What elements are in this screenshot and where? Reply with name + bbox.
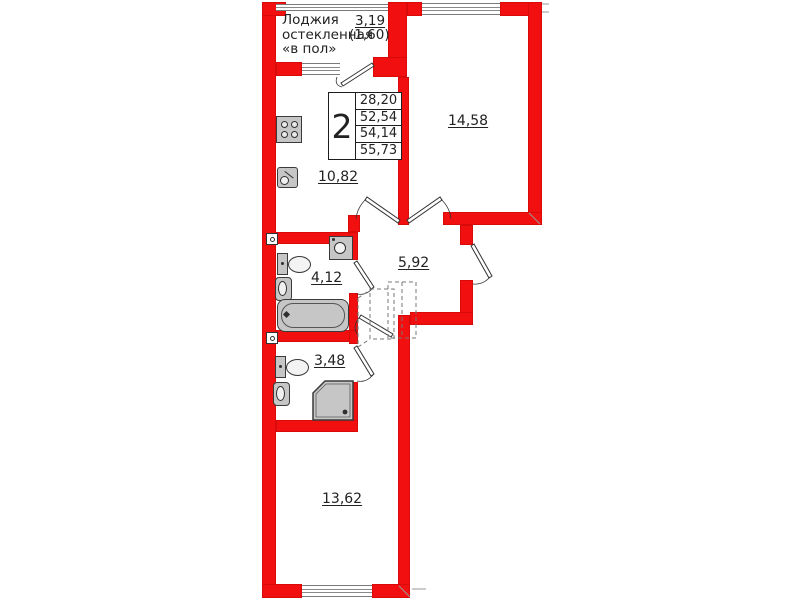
wall-kitchen-top — [276, 62, 302, 76]
ventilation-circle — [270, 336, 275, 341]
window-kitchen-loggia — [302, 63, 340, 75]
wall-right — [528, 2, 542, 225]
sink-bowl — [280, 176, 289, 185]
room-bottom-area-label: 13,62 — [322, 492, 362, 507]
toilet-tank-icon — [275, 356, 286, 378]
wall-bottom-b — [372, 584, 410, 598]
floor-plan: Лоджия остекленная «в пол» 3,19 (1,60) 2… — [0, 0, 800, 600]
door-swing-icon — [336, 63, 374, 87]
bathtub-inner — [281, 303, 345, 328]
stove-burner — [281, 121, 288, 128]
drafting-ticks — [399, 4, 549, 597]
washbasin-oval — [276, 386, 285, 401]
stove-icon — [276, 116, 302, 143]
loggia-area-secondary-label: (1,60) — [349, 28, 390, 43]
wall-entry-lower-stub — [460, 280, 473, 315]
bathroom-area-label: 4,12 — [311, 271, 342, 286]
bathtub-icon — [277, 299, 349, 332]
washbasin-icon — [275, 277, 292, 301]
wall-hall-bottom — [410, 312, 473, 325]
toilet-bowl-icon — [286, 359, 309, 376]
door-swing-icon — [356, 197, 400, 223]
wall-bathroom-right-lower — [349, 293, 358, 332]
area-value: 28,20 — [356, 93, 401, 110]
rooms-count: 2 — [329, 93, 356, 159]
hallway-area-label: 5,92 — [398, 256, 429, 271]
ventilation-icon — [266, 233, 278, 245]
door-swing-icon — [355, 315, 393, 337]
wall-bottom-a — [262, 584, 302, 598]
washbasin-icon — [273, 382, 290, 406]
door-swing-icon — [354, 346, 374, 381]
wall-wc-bottom — [276, 420, 358, 432]
washing-machine-knob — [332, 238, 335, 241]
ventilation-circle — [270, 237, 275, 242]
wall-top-a — [407, 2, 422, 16]
shower-cabin-icon — [313, 381, 353, 420]
wall-entry-upper-stub — [460, 225, 473, 245]
stove-burner — [291, 121, 298, 128]
washing-machine-icon — [329, 236, 353, 260]
wall-kitchen-door-jamb — [348, 215, 360, 232]
toilet-bowl-icon — [288, 256, 311, 273]
wall-left — [262, 2, 276, 598]
toilet-tank-icon — [277, 253, 288, 275]
room-top-area-label: 14,58 — [448, 114, 488, 129]
flush-button — [279, 365, 282, 368]
entrance-door-swing-icon — [471, 244, 492, 284]
flush-button — [281, 262, 284, 265]
kitchen-sink-icon — [277, 167, 298, 188]
stove-burner — [281, 131, 288, 138]
window-room-top — [422, 3, 500, 15]
stove-burner — [291, 131, 298, 138]
title-block: 2 28,20 52,54 54,14 55,73 — [328, 92, 402, 160]
area-value: 55,73 — [356, 143, 401, 160]
wc-area-label: 3,48 — [314, 354, 345, 369]
door-swing-icon — [354, 261, 374, 294]
area-value: 54,14 — [356, 126, 401, 143]
ventilation-icon — [266, 332, 278, 344]
washbasin-oval — [278, 281, 287, 296]
wall-wc-right-upper — [349, 330, 358, 344]
wall-loggia-door-jamb — [373, 57, 407, 77]
loggia-glazing — [276, 4, 388, 11]
kitchen-area-label: 10,82 — [318, 170, 358, 185]
loggia-label-line3: «в пол» — [282, 42, 373, 57]
washing-machine-drum — [334, 242, 346, 254]
area-value: 52,54 — [356, 110, 401, 127]
wall-room-top-bottom — [443, 212, 542, 225]
wall-corridor-right — [398, 315, 410, 598]
window-room-bottom — [302, 585, 372, 597]
